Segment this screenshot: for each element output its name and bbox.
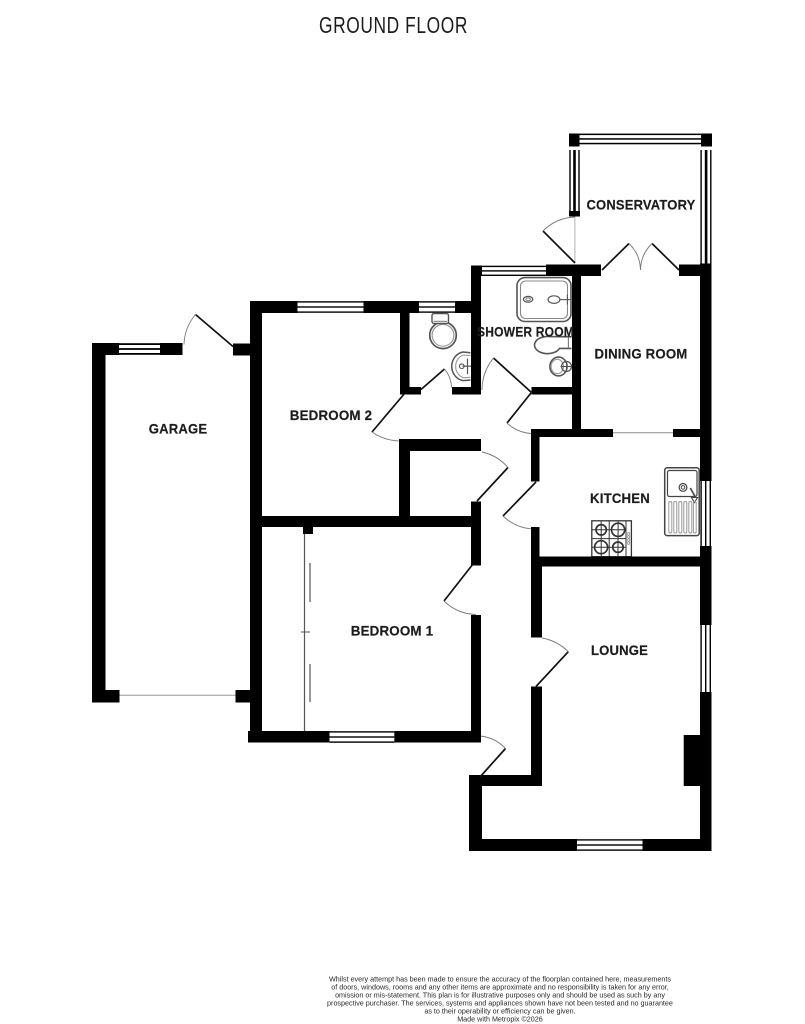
svg-text:KITCHEN: KITCHEN xyxy=(590,490,650,506)
svg-text:GARAGE: GARAGE xyxy=(149,421,208,437)
svg-text:LOUNGE: LOUNGE xyxy=(591,642,648,658)
svg-text:Made with Metropix ©2026: Made with Metropix ©2026 xyxy=(457,1014,543,1023)
svg-text:CONSERVATORY: CONSERVATORY xyxy=(587,197,696,213)
svg-text:DINING ROOM: DINING ROOM xyxy=(595,345,688,361)
svg-text:SHOWER ROOM: SHOWER ROOM xyxy=(477,324,574,340)
svg-text:BEDROOM 1: BEDROOM 1 xyxy=(351,622,434,638)
svg-text:BEDROOM 2: BEDROOM 2 xyxy=(290,407,373,423)
svg-text:GROUND FLOOR: GROUND FLOOR xyxy=(319,12,468,38)
